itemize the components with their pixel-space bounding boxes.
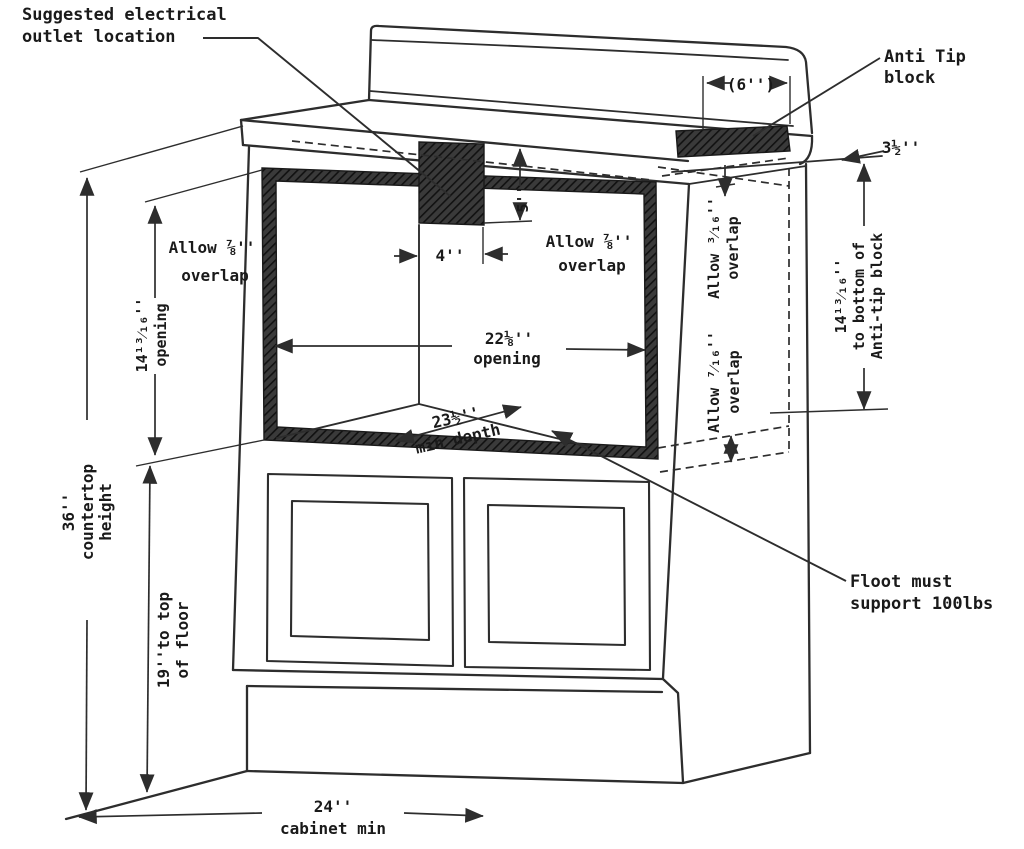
label-electrical-outlet-line2: outlet location xyxy=(22,27,176,47)
dim-cabinet-label-line1: 24'' xyxy=(314,797,353,816)
allow78-left-label-line2: overlap xyxy=(181,266,248,285)
dim-opening-width-label-line1: 22⅛'' xyxy=(485,329,533,348)
text-labels: Suggested electrical outlet location Ant… xyxy=(22,5,993,838)
label-anti-tip-line2: block xyxy=(884,68,935,88)
ext-antitip-bottom-ref xyxy=(770,409,888,413)
dim-countertop-label-line2: countertop xyxy=(78,464,97,560)
dim-antitip-label-line1: 14¹³⁄₁₆'' xyxy=(832,259,850,334)
cabinet-doors xyxy=(267,474,650,670)
floor-line-left xyxy=(66,771,247,819)
dim-4in-label: 4'' xyxy=(436,246,465,265)
dim-opening-width-label-line2: opening xyxy=(473,349,540,368)
hidden-bottom-rear-edge-2 xyxy=(660,452,789,472)
dim-5in-label: 5'' xyxy=(514,185,532,212)
door-right-inner xyxy=(488,505,625,645)
label-anti-tip-line1: Anti Tip xyxy=(884,47,966,67)
dim-countertop-label-line3: height xyxy=(96,483,115,541)
dim-floor-label-line2: of floor xyxy=(173,601,192,678)
side-panel-bottom-edge xyxy=(683,753,810,783)
allow78-left-label-line1: Allow ⅞'' xyxy=(169,238,256,257)
base-floor-front-edge xyxy=(247,771,683,783)
dim-opening-width-right xyxy=(566,349,645,350)
ext-5in-tick xyxy=(484,221,532,223)
dim-opening-height-label-line1: 14¹³⁄₁₆'' xyxy=(133,298,151,373)
dim-6in-label: (6'') xyxy=(727,75,775,94)
dim-3half-label: 3½'' xyxy=(882,138,921,157)
hidden-bottom-rear-edge-1 xyxy=(658,426,789,448)
leader-floor-support xyxy=(552,431,846,581)
leader-anti-tip xyxy=(753,58,880,136)
dim-24-right xyxy=(404,813,483,816)
allow316-label-line2: overlap xyxy=(724,216,742,279)
label-electrical-outlet-line1: Suggested electrical xyxy=(22,5,227,25)
ext-opening-top-left xyxy=(145,170,262,202)
dim-floor-label-line1: 19''to top xyxy=(154,592,173,688)
allow78-right-label-line2: overlap xyxy=(558,256,625,275)
dim-cabinet-label-line2: cabinet min xyxy=(280,819,386,838)
dim-24-left xyxy=(79,813,262,817)
dim-36-lower xyxy=(86,620,87,810)
dim-antitip-label-line3: Anti-tip block xyxy=(868,233,886,359)
base-corner-notch xyxy=(663,679,683,782)
cabinet-cutout-diagram: Suggested electrical outlet location Ant… xyxy=(0,0,1024,849)
electrical-outlet-box xyxy=(419,142,484,225)
countertop-surface-left-edge xyxy=(241,100,369,120)
dim-19-line xyxy=(147,466,150,792)
countertop-right-round xyxy=(800,136,812,164)
dim-antitip-label-line2: to bottom of xyxy=(850,242,868,350)
allow78-right-label-line1: Allow ⅞'' xyxy=(546,232,633,251)
cabinet-bottom-edge xyxy=(233,670,663,679)
side-panel-right-edge xyxy=(806,164,810,753)
installation-diagram-page: Suggested electrical outlet location Ant… xyxy=(0,0,1024,849)
floor-support-label-line1: Floot must xyxy=(850,572,952,592)
door-left-inner xyxy=(291,501,429,640)
cabinet-left-edge xyxy=(233,147,249,670)
floor-support-label-line2: support 100lbs xyxy=(850,594,993,614)
leader-lines xyxy=(203,38,880,581)
allow716-label-line2: overlap xyxy=(725,350,743,413)
cabinet-right-front-corner xyxy=(663,184,689,678)
base-top-edge xyxy=(247,686,662,692)
dim-opening-height-label-line2: opening xyxy=(152,303,170,366)
allow716-label-line1: Allow ⁷⁄₁₆'' xyxy=(705,331,723,433)
backsplash-bottom-inner xyxy=(370,91,793,126)
allow316-label-line1: Allow ³⁄₁₆'' xyxy=(705,197,723,299)
anti-tip-block xyxy=(676,126,790,157)
ext-countertop-left xyxy=(80,126,243,172)
dim-countertop-label-line1: 36'' xyxy=(59,493,78,532)
countertop-left-cap xyxy=(241,120,243,145)
